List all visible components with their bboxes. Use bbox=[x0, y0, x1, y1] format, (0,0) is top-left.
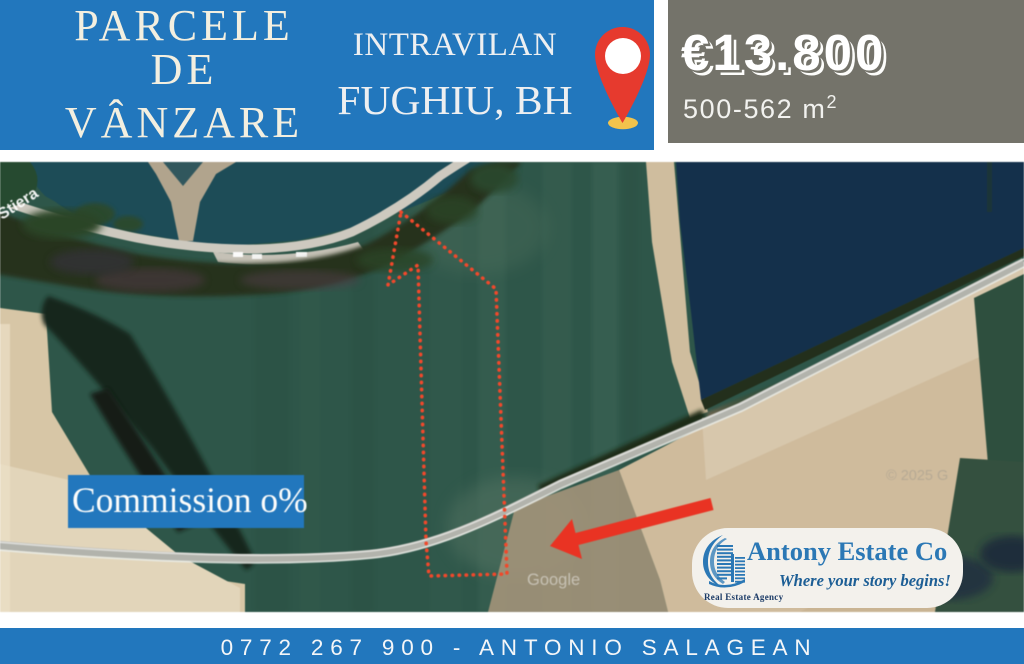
svg-text:© 2025 G: © 2025 G bbox=[886, 468, 948, 484]
svg-text:Google: Google bbox=[527, 571, 580, 589]
svg-text:Commission o%: Commission o% bbox=[72, 480, 308, 520]
